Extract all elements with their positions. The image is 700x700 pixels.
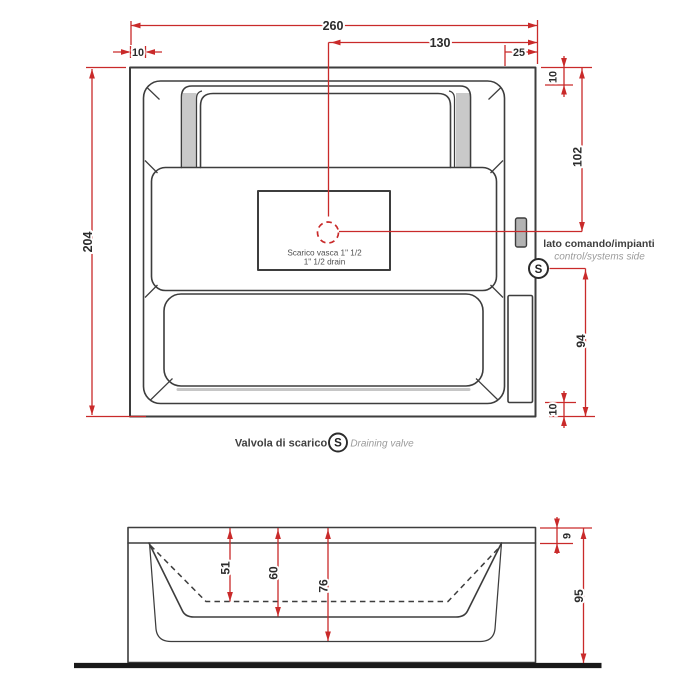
dim-depth-shell: 76 bbox=[317, 528, 331, 641]
dim-10-top-text: 10 bbox=[548, 71, 560, 83]
bathtub-technical-drawing-page: Scarico vasca 1" 1/2 1" 1/2 drain S lato… bbox=[0, 0, 700, 700]
dim-95-text: 95 bbox=[572, 589, 586, 603]
legend-valve-symbol: S bbox=[334, 438, 342, 450]
dim-10-bottom-text: 10 bbox=[548, 403, 560, 415]
corner-diagonals bbox=[145, 88, 503, 401]
dim-51-text: 51 bbox=[219, 561, 233, 575]
plan-headrest-console bbox=[182, 86, 471, 168]
headrest-ridge-left-shade bbox=[183, 93, 197, 167]
dim-overall-width: 260 bbox=[131, 19, 538, 64]
dim-left-inset: 10 bbox=[113, 46, 162, 59]
drain-note-it: Scarico vasca 1" 1/2 bbox=[287, 249, 362, 258]
dim-top-inset: 10 bbox=[541, 56, 592, 97]
dim-center-to-right: 130 bbox=[329, 36, 538, 217]
dim-depth-inner: 60 bbox=[267, 528, 281, 617]
dim-60-text: 60 bbox=[267, 566, 281, 580]
plan-middle-band bbox=[152, 168, 497, 291]
headrest-backrest bbox=[201, 94, 451, 168]
valve-symbol-letter: S bbox=[535, 264, 543, 276]
section-view: 51 60 76 9 bbox=[74, 517, 602, 666]
dim-9-text: 9 bbox=[562, 533, 574, 539]
dim-overall-depth: 204 bbox=[81, 68, 146, 417]
dim-102-text: 102 bbox=[571, 147, 585, 167]
dim-depth-to-seat: 51 bbox=[219, 528, 233, 602]
headrest-ridge-right-shade bbox=[456, 93, 470, 167]
drain-circle bbox=[318, 222, 339, 243]
plan-footrest bbox=[164, 294, 483, 386]
drain-valve-symbol-plan: S bbox=[529, 259, 548, 278]
control-side-label-it: lato comando/impianti bbox=[543, 238, 655, 250]
dim-total-height: 95 bbox=[572, 528, 586, 663]
dim-204-text: 204 bbox=[81, 232, 95, 253]
control-side-label-en: control/systems side bbox=[554, 252, 645, 263]
dim-94-text: 94 bbox=[574, 334, 588, 348]
headrest-outer-edge bbox=[182, 86, 471, 168]
control-panel bbox=[516, 218, 527, 247]
drain-note-en: 1" 1/2 drain bbox=[304, 258, 346, 267]
section-outer-body bbox=[128, 528, 536, 663]
dim-right-inset: 25 bbox=[505, 45, 538, 66]
legend-valve-it: Valvola di scarico bbox=[235, 438, 328, 450]
dim-76-text: 76 bbox=[317, 579, 331, 593]
drawing-canvas: Scarico vasca 1" 1/2 1" 1/2 drain S lato… bbox=[0, 0, 700, 700]
dim-260-text: 260 bbox=[323, 19, 344, 33]
dim-130-text: 130 bbox=[430, 36, 451, 50]
side-access-panel bbox=[508, 296, 533, 403]
plan-view: Scarico vasca 1" 1/2 1" 1/2 drain S lato… bbox=[130, 68, 655, 417]
dim-10-left-text: 10 bbox=[132, 47, 144, 59]
dim-drain-to-bottom: 94 bbox=[550, 269, 589, 417]
dim-25-text: 25 bbox=[513, 47, 525, 59]
legend-valve-en: Draining valve bbox=[350, 439, 414, 450]
caption-legend: Valvola di scarico S Draining valve bbox=[235, 434, 414, 452]
